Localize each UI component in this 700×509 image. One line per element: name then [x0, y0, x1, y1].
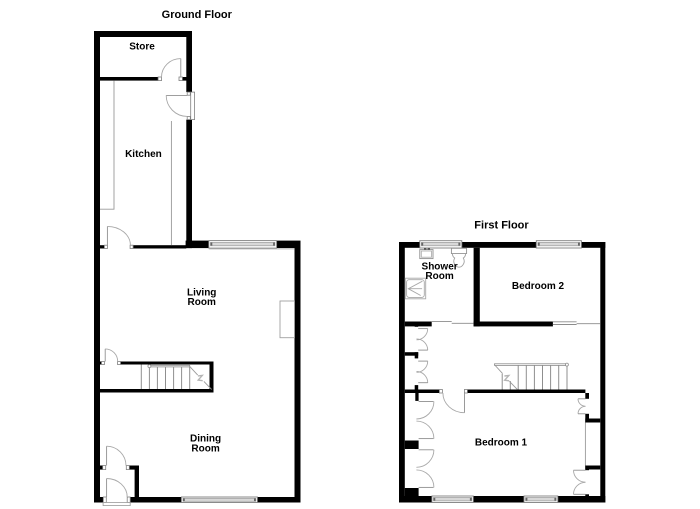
svg-text:Room: Room — [188, 297, 216, 308]
svg-text:Ground Floor: Ground Floor — [162, 9, 233, 21]
svg-text:Kitchen: Kitchen — [125, 149, 162, 160]
svg-text:Store: Store — [129, 42, 155, 53]
svg-text:Room: Room — [191, 443, 219, 454]
svg-text:Bedroom 1: Bedroom 1 — [475, 437, 528, 448]
svg-text:Room: Room — [425, 271, 453, 282]
svg-text:Bedroom 2: Bedroom 2 — [512, 281, 565, 292]
svg-text:First Floor: First Floor — [474, 220, 529, 232]
